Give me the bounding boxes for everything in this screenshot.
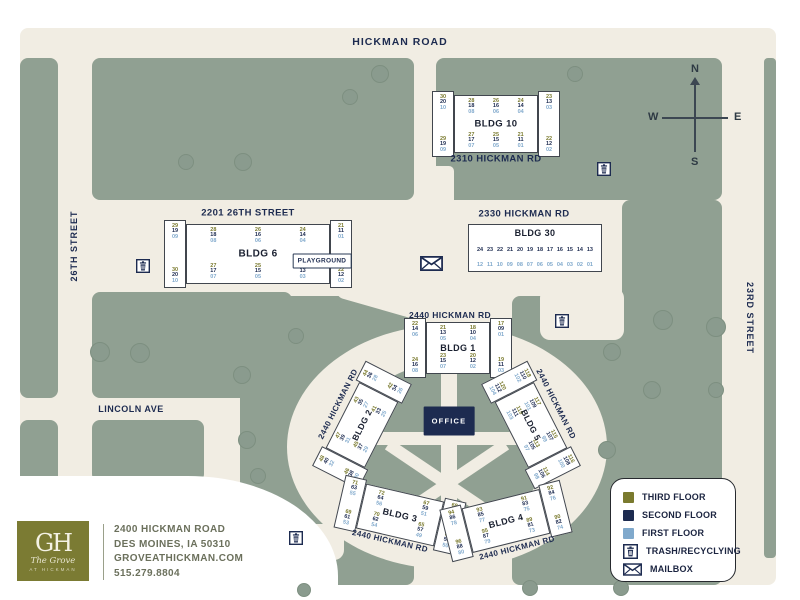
logo-brand-name: The Grove (31, 557, 76, 566)
first-floor-unit: 26 (397, 387, 405, 395)
first-floor-unit: 79 (484, 539, 491, 546)
unit-number-stack: 170901 (498, 322, 504, 338)
first-floor-unit: 11 (487, 262, 493, 268)
second-floor-unit: 16 (557, 247, 563, 253)
legend-label: SECOND FLOOR (642, 510, 717, 520)
unit-number-stack: 453729 (353, 441, 370, 454)
tree (567, 66, 583, 82)
first-floor-unit: 28 (372, 374, 380, 382)
legend-item: TRASH/RECYCLYING (623, 542, 735, 560)
unit-number-stack: 443628 (363, 370, 380, 383)
unit-number-stack: 302010 (440, 95, 446, 111)
unit-number-stack: 120112104 (488, 381, 507, 397)
first-floor-unit: 74 (557, 525, 564, 532)
first-floor-unit: 02 (546, 148, 552, 153)
legend-trash-icon (623, 544, 638, 559)
label-office: OFFICE (424, 407, 475, 436)
unit-number-stack: 281808 (210, 228, 216, 244)
first-floor-unit: 55 (349, 491, 356, 498)
unit-number-stack: 433527 (354, 396, 371, 409)
trash-recycling-icon (623, 544, 638, 559)
unit-number-stack: 261606 (493, 99, 499, 115)
building-body: 211305181004231507201202BLDG 1 (426, 322, 490, 374)
street-26th-label: 26TH STREET (69, 210, 79, 281)
trash-recycling-icon (136, 259, 150, 273)
grove-logo: GH The Grove AT HICKMAN (17, 521, 89, 581)
unit-number-stack: 958779 (481, 529, 491, 546)
second-floor-unit: 13 (587, 247, 593, 253)
building-body: BLDG 30242322212019181716151413121110090… (468, 224, 602, 272)
unit-number-stack: 231303 (546, 95, 552, 111)
floor-color-swatch (623, 510, 634, 521)
unit-number-stack: 241404 (300, 228, 306, 244)
first-floor-unit: 04 (557, 262, 563, 268)
first-floor-unit: 32 (329, 460, 337, 468)
first-floor-unit: 08 (468, 110, 474, 115)
first-floor-unit: 06 (255, 239, 261, 244)
tree (90, 342, 110, 362)
mailbox-marker (420, 256, 443, 271)
first-floor-unit: 10 (172, 279, 178, 284)
unit-number-stack: 118110102 (512, 368, 531, 384)
unit-number-stack: 948678 (448, 510, 458, 527)
building-endcap-left: 291909302010 (164, 220, 186, 288)
unit-number-stack: 251505 (493, 133, 499, 149)
first-floor-unit: 03 (546, 106, 552, 111)
address-block: 2400 HICKMAN ROAD DES MOINES, IA 50310 G… (114, 523, 243, 581)
unit-number-stack: 968880 (455, 539, 465, 556)
mailbox-icon (420, 256, 443, 271)
first-floor-unit: 07 (210, 275, 216, 280)
unit-number-stack: 291909 (172, 224, 178, 240)
first-floor-unit: 06 (493, 110, 499, 115)
first-floor-unit: 04 (470, 337, 476, 342)
first-floor-unit: 08 (517, 262, 523, 268)
unit-row-bottom: 231507201202 (431, 354, 485, 370)
second-floor-unit: 15 (567, 247, 573, 253)
first-floor-unit: 56 (375, 501, 382, 508)
first-floor-unit: 80 (458, 550, 465, 557)
first-floor-unit: 53 (342, 520, 349, 527)
green-strip-far-right (764, 58, 776, 558)
second-floor-unit: 23 (487, 247, 493, 253)
logo-brand-sub: AT HICKMAN (29, 567, 76, 572)
compass-axis-horizontal (662, 117, 728, 119)
first-floor-unit: 02 (577, 262, 583, 268)
first-floor-unit: 05 (440, 337, 446, 342)
compass-e: E (734, 111, 741, 123)
unit-number-stack: 211305 (440, 326, 446, 342)
tree (250, 468, 266, 484)
first-floor-unit: 07 (468, 144, 474, 149)
bldg-30: BLDG 30242322212019181716151413121110090… (468, 224, 602, 272)
second-floor-unit: 19 (527, 247, 533, 253)
site-map: HICKMAN ROAD 26TH STREET 23RD STREET LIN… (0, 0, 800, 600)
first-floor-unit: 54 (370, 522, 377, 529)
second-floor-unit: 17 (547, 247, 553, 253)
first-floor-unit: 77 (479, 518, 486, 525)
tree (613, 580, 629, 596)
first-floor-unit: 51 (420, 511, 427, 518)
unit-row-top: 281808261606241404 (191, 228, 325, 244)
mailbox-icon (623, 563, 642, 576)
address-line-4: 515.279.8804 (114, 567, 243, 582)
legend-item: FIRST FLOOR (623, 524, 735, 542)
tree (653, 310, 673, 330)
label-2310-hickman-rd: 2310 HICKMAN RD (451, 154, 542, 165)
second-floor-unit: 18 (537, 247, 543, 253)
unit-number-stack: 181004 (470, 326, 476, 342)
unit-number-stack: 928476 (547, 486, 557, 503)
second-floor-unit: 21 (507, 247, 513, 253)
street-23rd-label: 23RD STREET (745, 282, 755, 354)
first-floor-unit: 09 (172, 235, 178, 240)
unit-number-stack: 484032 (319, 455, 336, 468)
tree (603, 343, 621, 361)
tree (130, 343, 150, 363)
lincoln-ave-label: LINCOLN AVE (98, 404, 164, 414)
legend-label: MAILBOX (650, 564, 693, 574)
floor-color-swatch (623, 528, 634, 539)
legend-label: FIRST FLOOR (642, 528, 704, 538)
tree (371, 65, 389, 83)
first-floor-unit: 07 (527, 262, 533, 268)
tree (234, 153, 252, 171)
first-floor-unit: 07 (440, 365, 446, 370)
building-body: 281808261606241404271707251505211101BLDG… (454, 95, 538, 153)
logo-monogram: GH (35, 531, 71, 555)
building-label: BLDG 10 (475, 119, 518, 130)
unit-number-stack: 116108100 (556, 454, 575, 470)
unit-number-stack: 908274 (554, 515, 564, 532)
first-floor-unit: 49 (415, 533, 422, 540)
first-floor-unit: 25 (381, 410, 389, 418)
first-floor-unit: 04 (300, 239, 306, 244)
building-label: BLDG 30 (474, 228, 596, 238)
building-endcap-left: 221406241608 (404, 318, 426, 378)
first-floor-unit: 01 (518, 144, 524, 149)
tree (297, 583, 311, 597)
margin-left (0, 0, 20, 600)
unit-row-bottom: 271707251505211101 (459, 133, 533, 149)
trash-recycling-icon (555, 314, 569, 328)
unit-row-top: 281808261606241404 (459, 99, 533, 115)
unit-number-stack: 211101 (518, 133, 524, 149)
unit-number-stack: 11410698 (531, 466, 550, 482)
building-endcap-right: 231303221202 (538, 91, 560, 157)
label-2330-hickman-rd: 2330 HICKMAN RD (479, 209, 570, 220)
hickman-road-label: HICKMAN ROAD (352, 36, 447, 48)
first-floor-unit: 29 (363, 446, 371, 454)
margin-right (776, 0, 800, 600)
tree (233, 366, 251, 384)
first-floor-unit: 78 (451, 521, 458, 528)
unit-number-stack: 221202 (338, 268, 344, 284)
compass-rose: N S W E (650, 68, 740, 168)
legend-label: THIRD FLOOR (642, 492, 706, 502)
first-floor-unit: 06 (537, 262, 543, 268)
unit-number-stack: 211101 (338, 224, 344, 240)
legend: THIRD FLOORSECOND FLOORFIRST FLOOR TRASH… (610, 478, 736, 582)
trash-recycling-marker (555, 314, 569, 328)
second-floor-unit: 24 (477, 247, 483, 253)
compass-s: S (691, 156, 698, 168)
building-label: BLDG 1 (440, 343, 475, 353)
legend-item: MAILBOX (623, 560, 735, 578)
unit-number-stack: 898173 (526, 517, 536, 534)
first-floor-unit: 08 (210, 239, 216, 244)
compass-w: W (648, 111, 658, 123)
first-floor-unit: 08 (412, 369, 418, 374)
first-floor-unit: 12 (477, 262, 483, 268)
first-floor-unit: 05 (255, 275, 261, 280)
first-floor-unit: 01 (338, 235, 344, 240)
tree (342, 89, 358, 105)
trash-recycling-marker (597, 162, 611, 176)
unit-number-stack: 675951 (420, 501, 430, 518)
second-floor-unit: 14 (577, 247, 583, 253)
unit-number-stack: 261606 (255, 228, 261, 244)
first-floor-unit: 09 (507, 262, 513, 268)
first-floor-unit: 10 (497, 262, 503, 268)
building-label: BLDG 6 (238, 249, 277, 260)
margin-top (0, 0, 800, 28)
unit-number-stack: 655749 (415, 522, 425, 539)
trash-recycling-icon (597, 162, 611, 176)
road-connector-right (540, 288, 624, 340)
unit-number-stack: 716355 (349, 480, 359, 497)
unit-number-stack: 241404 (518, 99, 524, 115)
unit-number-stack: 251505 (255, 264, 261, 280)
first-floor-row: 121110090807060504030201 (474, 262, 596, 268)
tree (598, 441, 616, 459)
unit-number-stack: 938577 (476, 507, 486, 524)
unit-number-stack: 221202 (546, 137, 552, 153)
first-floor-unit: 10 (440, 106, 446, 111)
first-floor-unit: 98 (532, 473, 540, 481)
compass-n: N (691, 63, 699, 75)
first-floor-unit: 05 (493, 144, 499, 149)
label-playground: PLAYGROUND (293, 254, 352, 269)
unit-number-stack: 423426 (388, 382, 405, 395)
footer-divider (103, 524, 104, 580)
first-floor-unit: 01 (498, 333, 504, 338)
unit-number-stack: 918375 (521, 496, 531, 513)
green-block-left-strip-top (20, 58, 58, 398)
first-floor-unit: 03 (567, 262, 573, 268)
address-line-1: 2400 HICKMAN ROAD (114, 523, 243, 538)
unit-number-stack: 231507 (440, 354, 446, 370)
unit-number-stack: 221406 (412, 322, 418, 338)
white-strip-bottom (0, 586, 800, 600)
green-block-top-left (92, 58, 414, 200)
road-stub-hickman (424, 166, 454, 208)
bldg-1: 221406241608211305181004231507201202BLDG… (404, 322, 512, 374)
first-floor-unit: 02 (338, 279, 344, 284)
unit-number-stack: 271707 (210, 264, 216, 280)
first-floor-unit: 06 (412, 333, 418, 338)
trash-recycling-icon (289, 531, 303, 545)
first-floor-unit: 03 (300, 275, 306, 280)
legend-mailbox-icon (623, 563, 642, 576)
first-floor-unit: 73 (529, 528, 536, 535)
second-floor-row: 242322212019181716151413 (474, 247, 596, 253)
trash-recycling-marker (136, 259, 150, 273)
tree (288, 328, 304, 344)
first-floor-unit: 76 (550, 496, 557, 503)
tree (238, 431, 256, 449)
legend-label: TRASH/RECYCLYING (646, 546, 741, 556)
tree (178, 154, 194, 170)
tree (706, 317, 726, 337)
label-2440-hickman-rd-bldg1: 2440 HICKMAN RD (409, 310, 491, 320)
first-floor-unit: 75 (523, 507, 530, 514)
label-2201-26th-street: 2201 26TH STREET (201, 208, 295, 219)
address-line-3: GROVEATHICKMAN.COM (114, 552, 243, 567)
unit-row-top: 211305181004 (431, 326, 485, 342)
unit-number-stack: 706254 (370, 512, 380, 529)
second-floor-unit: 22 (497, 247, 503, 253)
unit-number-stack: 281808 (468, 99, 474, 115)
first-floor-unit: 05 (547, 262, 553, 268)
tree (522, 580, 538, 596)
trash-recycling-marker (289, 531, 303, 545)
second-floor-unit: 20 (517, 247, 523, 253)
first-floor-unit: 02 (470, 365, 476, 370)
legend-item: SECOND FLOOR (623, 506, 735, 524)
green-block-below-lincoln (92, 420, 204, 482)
unit-number-stack: 696153 (342, 509, 352, 526)
unit-number-stack: 241608 (412, 358, 418, 374)
legend-item: THIRD FLOOR (623, 488, 735, 506)
first-floor-unit: 97 (522, 444, 530, 452)
building-endcap-left: 302010291909 (432, 91, 454, 157)
bldg-10: 3020102919092818082616062414042717072515… (432, 95, 560, 153)
unit-number-stack: 291909 (440, 137, 446, 153)
first-floor-unit: 09 (440, 148, 446, 153)
floor-color-swatch (623, 492, 634, 503)
unit-number-stack: 271707 (468, 133, 474, 149)
address-line-2: DES MOINES, IA 50310 (114, 538, 243, 553)
unit-number-stack: 201202 (470, 354, 476, 370)
first-floor-unit: 04 (518, 110, 524, 115)
unit-number-stack: 302010 (172, 268, 178, 284)
tree (643, 381, 661, 399)
tree (708, 382, 724, 398)
first-floor-unit: 01 (587, 262, 593, 268)
